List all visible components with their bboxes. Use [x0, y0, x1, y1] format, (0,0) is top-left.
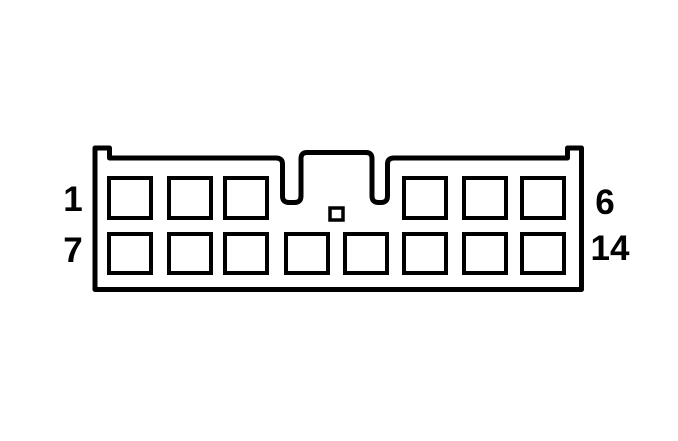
pin-cavity-2: [169, 178, 211, 218]
pin-label-1: 1: [56, 182, 90, 217]
pin-row-top: [109, 178, 564, 218]
pin-cavity-7: [109, 234, 151, 273]
pin-cavity-14: [522, 234, 564, 273]
pin-cavity-13: [464, 234, 506, 273]
pin-row-bottom: [109, 234, 564, 273]
pin-cavity-11: [345, 234, 387, 273]
pin-cavity-5: [464, 178, 506, 218]
pin-cavity-9: [225, 234, 267, 273]
pin-label-14: 14: [588, 231, 632, 266]
pin-label-6: 6: [588, 185, 622, 220]
pin-label-7: 7: [56, 233, 90, 268]
connector-diagram-graphic: [0, 0, 678, 441]
pin-cavity-4: [404, 178, 446, 218]
pin-cavity-10: [286, 234, 328, 273]
pin-cavity-3: [225, 178, 267, 218]
center-key-square: [330, 208, 343, 220]
pin-cavity-1: [109, 178, 151, 218]
pin-cavity-8: [169, 234, 211, 273]
pin-cavity-12: [404, 234, 446, 273]
connector-diagram: 1 6 7 14: [0, 0, 678, 441]
pin-cavity-6: [522, 178, 564, 218]
